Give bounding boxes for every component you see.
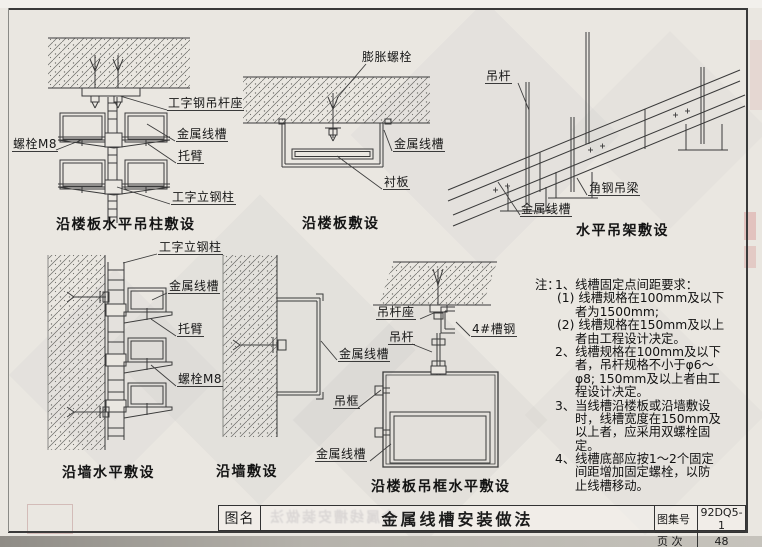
atlas-no-label: 图集号 [655,506,698,532]
title-block-name-label: 图名 [219,506,261,530]
label-hanger-rod-seat: 吊杆座 [376,306,416,320]
caption-ceiling-hanging-frame: 沿楼板吊框水平敷设 [371,476,511,496]
note-line: 以上者，应采用双螺栓固 [535,426,749,439]
label-metal-wireway-d3: 金属线槽 [520,203,572,217]
label-metal-wireway-d4: 金属线槽 [168,280,220,294]
label-bracket-arm-d1: 托臂 [177,150,204,164]
note-line: (1) 线槽规格在100mm及以下 [535,292,749,305]
label-i-steel-column-d1: 工字立钢柱 [171,191,236,205]
label-liner-plate: 衬板 [383,176,410,190]
title-block-right: 图集号 92DQ5-1 页 次 48 [655,506,745,530]
label-channel-steel-4: 4#槽钢 [471,323,517,337]
note-line: 间距增加固定螺栓，以防 [535,466,749,479]
note-line: 3、当线槽沿楼板或沿墙敷设 [535,400,749,413]
note-line: 止线槽移动。 [535,480,749,493]
label-angle-steel-beam: 角钢吊梁 [588,182,640,196]
caption-horizontal-trapeze: 水平吊架敷设 [576,220,669,240]
caption-ceiling-suspended-column: 沿楼板水平吊柱敷设 [56,214,196,234]
notes-prefix: 注： [535,279,560,292]
drawing-title: 金属线槽安装做法 [261,506,655,530]
page-no: 48 [698,535,745,547]
caption-ceiling-direct-mount: 沿楼板敷设 [302,213,380,233]
label-bolt-m8: 螺栓M8 [12,138,58,152]
note-line: 程设计决定。 [535,386,749,399]
label-expansion-bolt: 膨胀螺栓 [361,51,413,64]
label-i-steel-hanger-seat: 工字钢吊杆座 [167,97,244,111]
label-metal-wireway-d5: 金属线槽 [338,348,390,362]
note-line: (2) 线槽规格在150mm及以上 [535,319,749,332]
label-i-steel-column-d4: 工字立钢柱 [158,241,223,255]
page-no-label: 页 次 [655,533,698,547]
label-metal-wireway-d1: 金属线槽 [176,128,228,142]
label-metal-wireway-d2: 金属线槽 [393,138,445,152]
label-metal-wireway-d6: 金属线槽 [315,448,367,462]
label-hanger-rod-d6: 吊杆 [388,331,415,345]
caption-wall-horizontal-mount: 沿墙水平敷设 [62,462,155,482]
title-block: 图名 金属线槽安装做法 图集号 92DQ5-1 页 次 48 [218,505,746,531]
label-hanger-rod-d3: 吊杆 [485,70,512,84]
label-hanger-frame: 吊框 [333,395,360,409]
atlas-page: 螺栓M8 工字钢吊杆座 金属线槽 托臂 工字立钢柱 膨胀螺栓 金属线槽 衬板 吊… [0,0,762,547]
note-line: 者由工程设计决定。 [535,333,749,346]
caption-wall-mount: 沿墙敷设 [216,461,278,481]
atlas-no: 92DQ5-1 [698,506,745,532]
label-bolt-m8-d4: 螺栓M8 [177,373,223,387]
notes-block: 注： 1、线槽固定点间距要求： (1) 线槽规格在100mm及以下 者为1500… [535,279,749,493]
label-bracket-arm-d4: 托臂 [177,323,204,337]
note-line: 者，吊杆规格不小于φ6～ [535,359,749,372]
